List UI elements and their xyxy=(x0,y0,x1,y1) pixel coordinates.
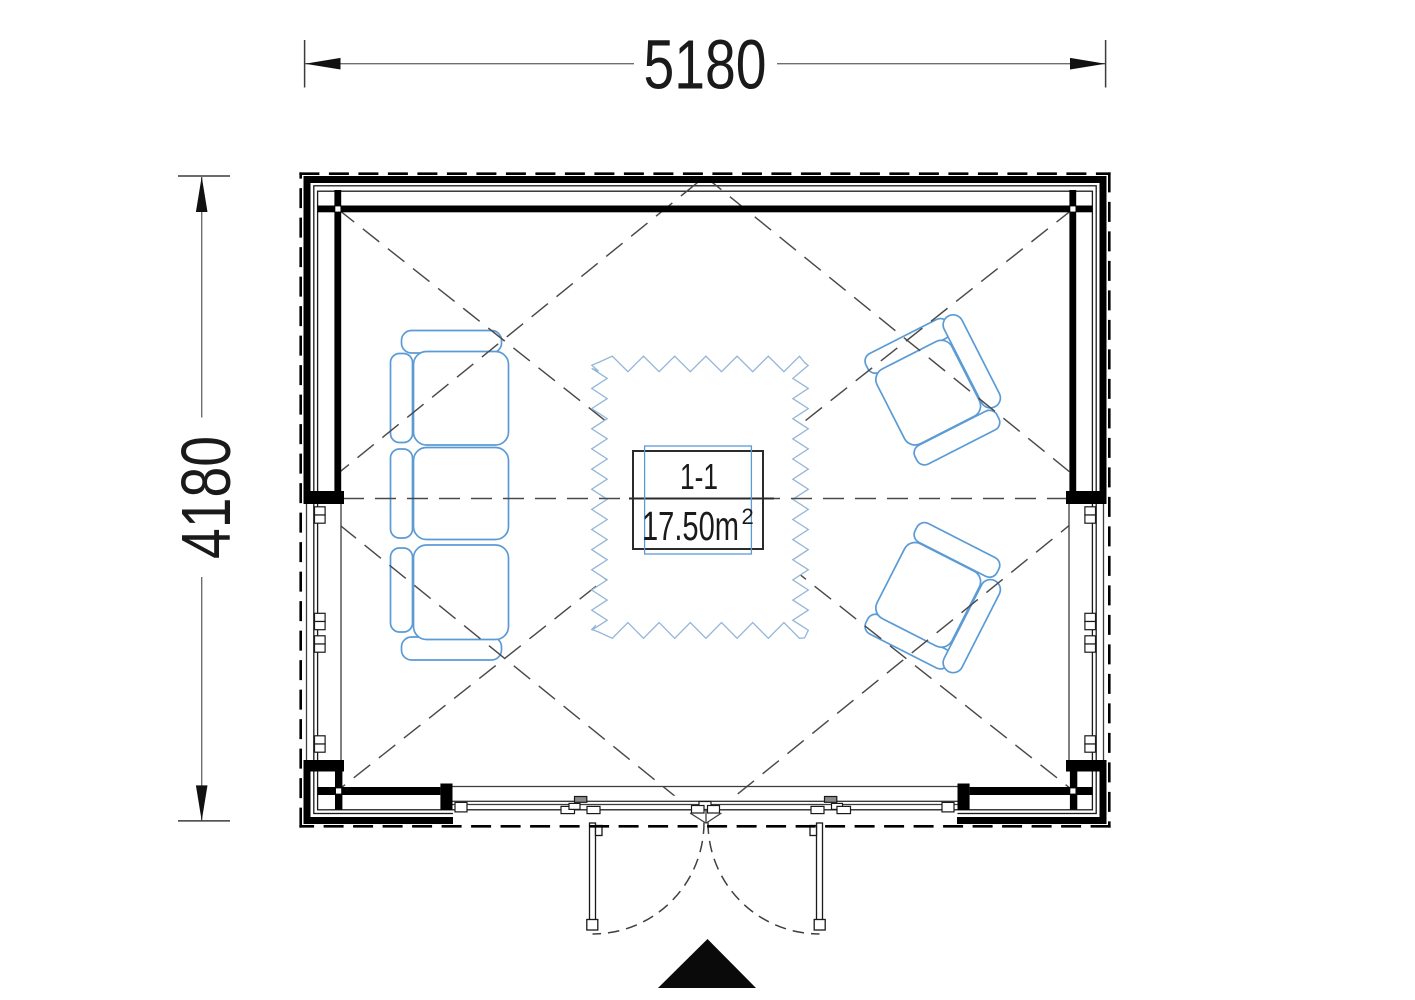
svg-text:4180: 4180 xyxy=(167,436,245,559)
svg-text:1-1: 1-1 xyxy=(680,456,718,497)
svg-text:2: 2 xyxy=(742,504,754,529)
svg-text:17.50m: 17.50m xyxy=(642,503,739,549)
svg-text:5180: 5180 xyxy=(644,26,767,104)
